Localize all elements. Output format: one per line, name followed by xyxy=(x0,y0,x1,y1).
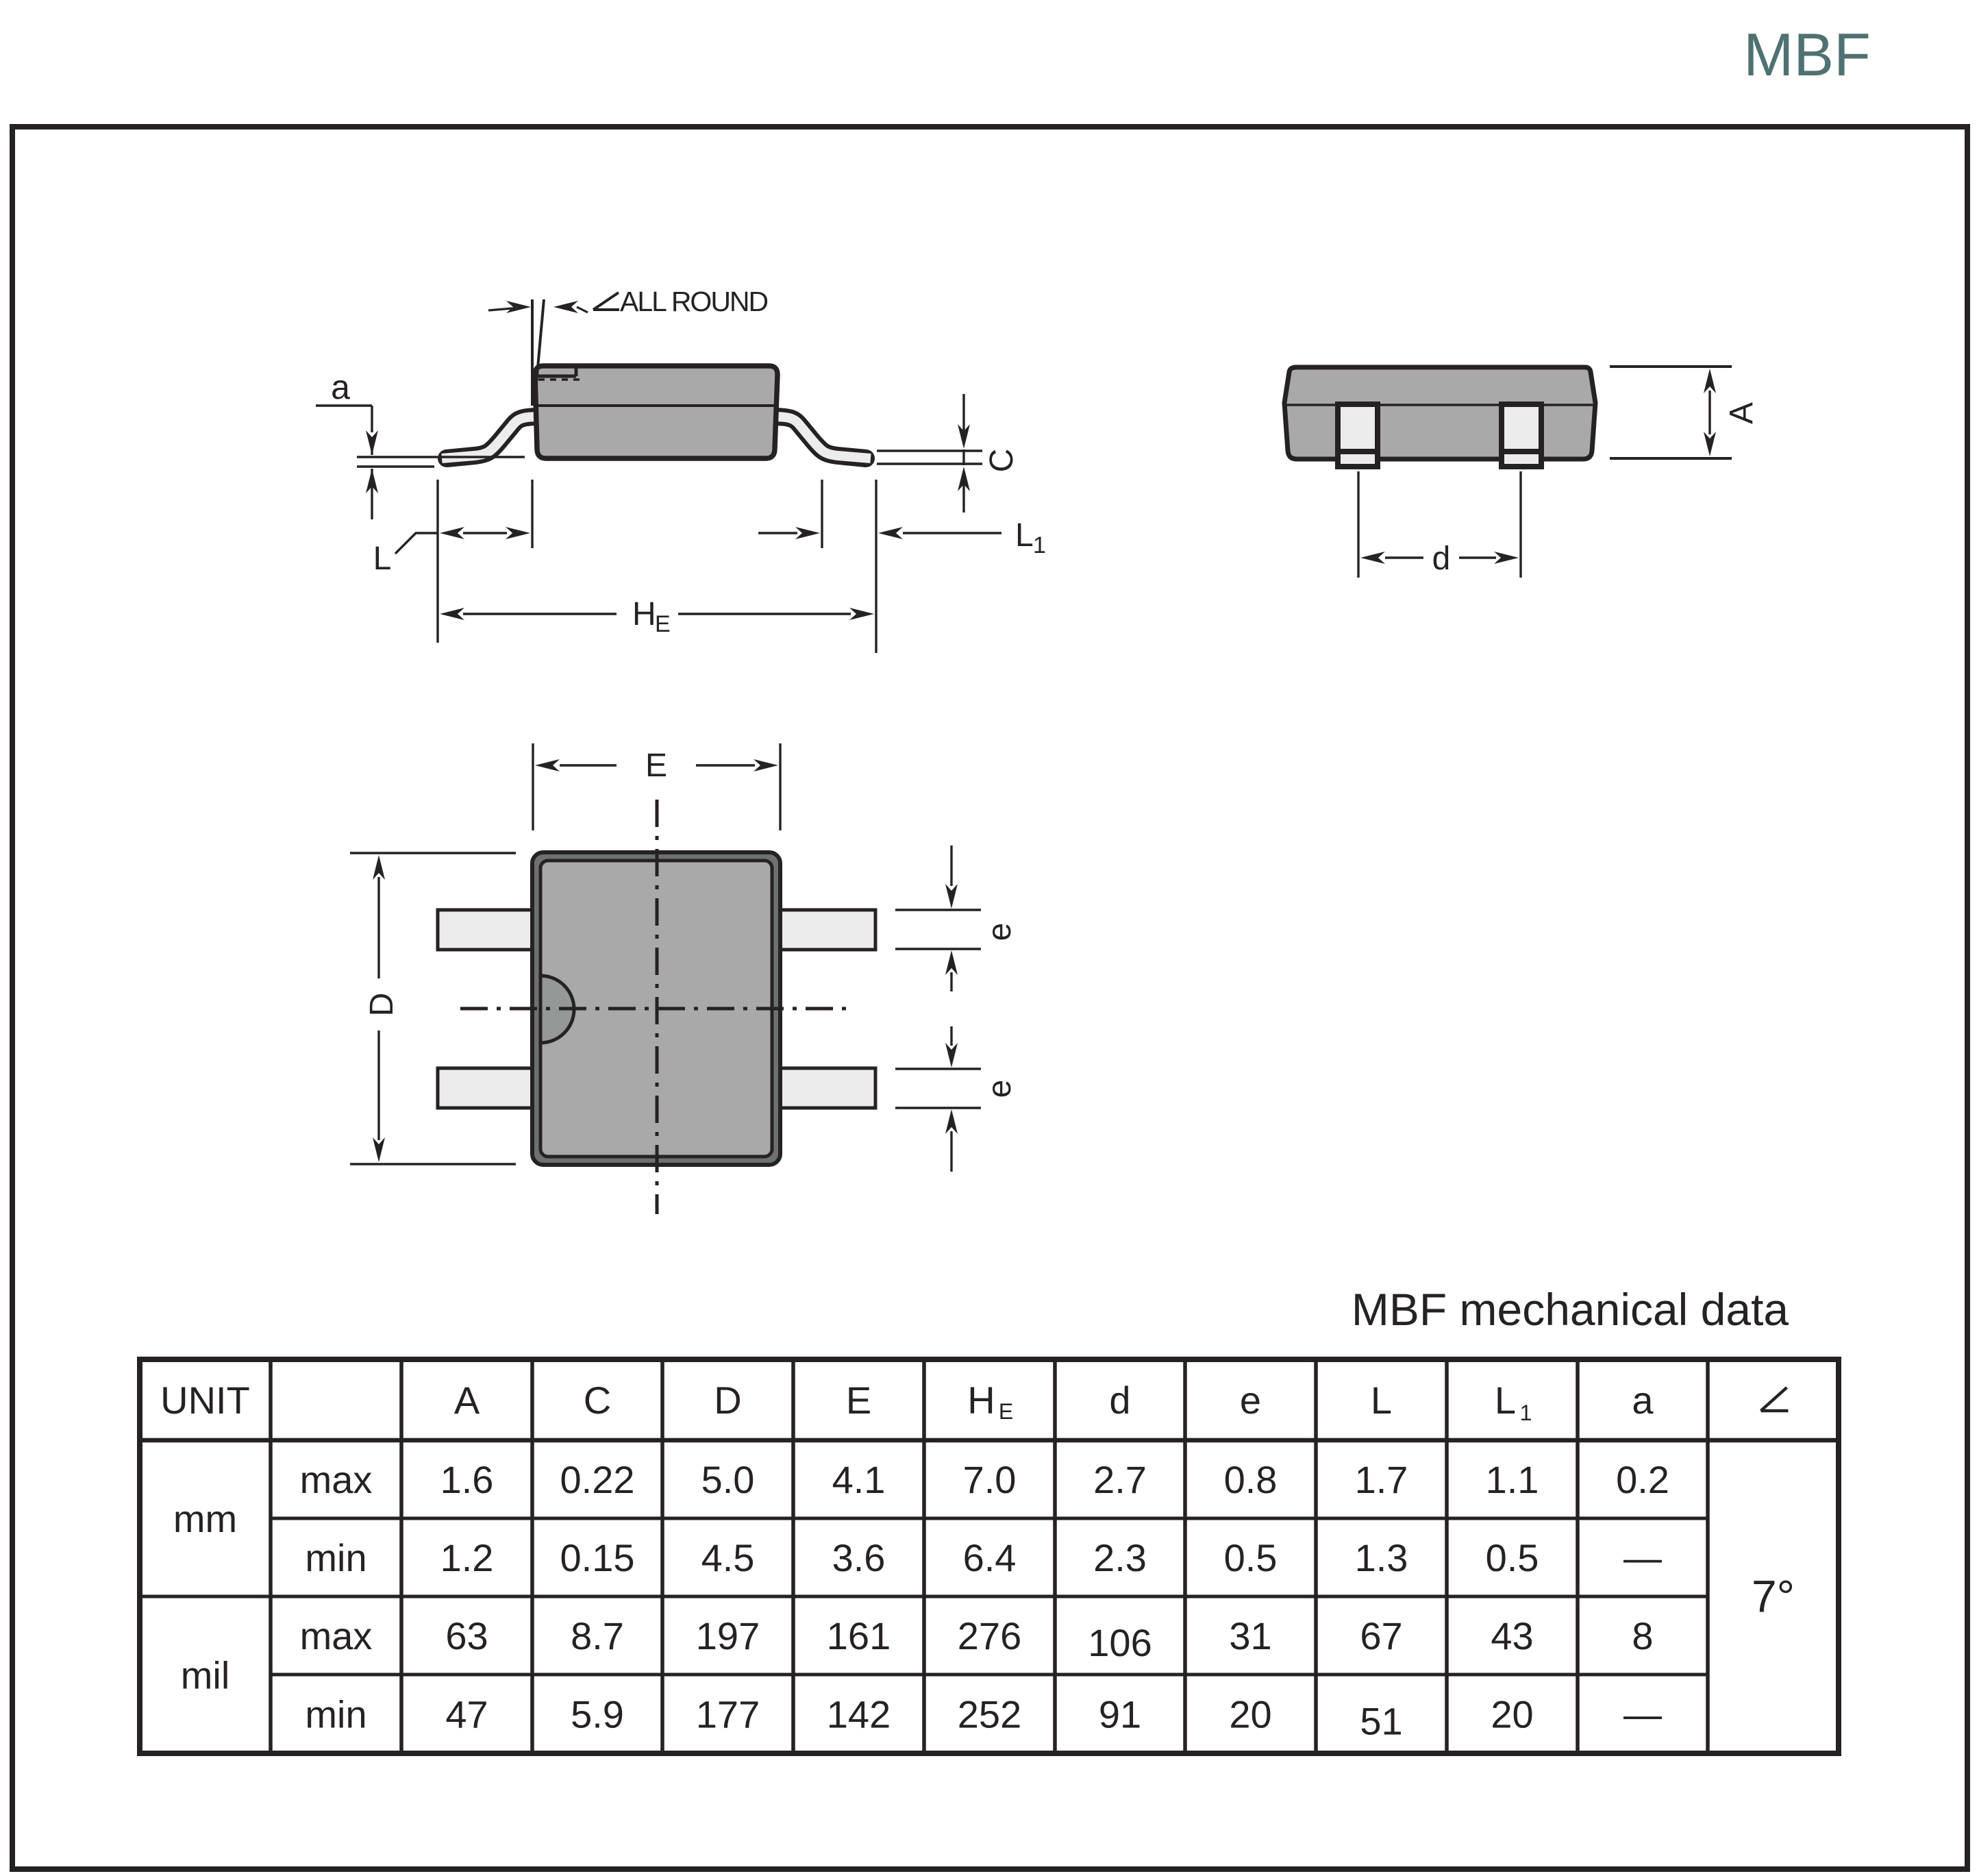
svg-text:252: 252 xyxy=(958,1693,1021,1736)
svg-text:1.7: 1.7 xyxy=(1355,1458,1408,1501)
svg-text:197: 197 xyxy=(696,1614,760,1657)
svg-text:177: 177 xyxy=(696,1693,760,1736)
svg-text:e: e xyxy=(1240,1379,1261,1422)
svg-text:A: A xyxy=(454,1379,480,1422)
svg-text:43: 43 xyxy=(1491,1614,1533,1657)
svg-text:E: E xyxy=(645,748,667,784)
svg-text:106: 106 xyxy=(1088,1621,1152,1664)
svg-text:31: 31 xyxy=(1229,1614,1271,1657)
svg-text:20: 20 xyxy=(1491,1693,1533,1736)
svg-text:max: max xyxy=(300,1614,373,1657)
svg-text:1: 1 xyxy=(1033,532,1046,558)
svg-text:a: a xyxy=(1632,1379,1654,1422)
svg-text:D: D xyxy=(714,1379,741,1422)
svg-text:E: E xyxy=(846,1379,871,1422)
svg-text:min: min xyxy=(305,1536,366,1579)
svg-text:MBF mechanical data: MBF mechanical data xyxy=(1352,1284,1789,1335)
svg-text:3.6: 3.6 xyxy=(832,1536,886,1579)
svg-text:63: 63 xyxy=(445,1614,488,1657)
svg-text:1.2: 1.2 xyxy=(440,1536,494,1579)
svg-text:5.9: 5.9 xyxy=(571,1693,624,1736)
svg-text:A: A xyxy=(1723,402,1760,424)
svg-text:—: — xyxy=(1623,1536,1662,1579)
svg-text:—: — xyxy=(1623,1693,1662,1736)
svg-text:d: d xyxy=(1432,541,1451,577)
svg-text:H: H xyxy=(632,596,656,632)
svg-text:C: C xyxy=(984,449,1020,473)
svg-text:2.7: 2.7 xyxy=(1093,1458,1147,1501)
svg-text:H: H xyxy=(967,1379,995,1422)
svg-text:C: C xyxy=(584,1379,611,1422)
svg-text:e: e xyxy=(982,1080,1018,1098)
svg-text:L: L xyxy=(1371,1379,1392,1422)
svg-text:0.5: 0.5 xyxy=(1486,1536,1539,1579)
svg-text:L: L xyxy=(1495,1379,1516,1422)
svg-text:47: 47 xyxy=(445,1693,488,1736)
svg-text:MBF: MBF xyxy=(1743,21,1871,88)
svg-text:mm: mm xyxy=(173,1497,237,1540)
svg-text:D: D xyxy=(364,993,400,1017)
svg-text:4.1: 4.1 xyxy=(832,1458,886,1501)
svg-text:7°: 7° xyxy=(1752,1571,1795,1622)
svg-text:67: 67 xyxy=(1360,1614,1402,1657)
svg-text:6.4: 6.4 xyxy=(963,1536,1017,1579)
svg-text:4.5: 4.5 xyxy=(701,1536,755,1579)
svg-text:0.15: 0.15 xyxy=(560,1536,635,1579)
svg-text:d: d xyxy=(1109,1379,1130,1422)
svg-text:0.8: 0.8 xyxy=(1224,1458,1278,1501)
svg-text:8: 8 xyxy=(1632,1614,1653,1657)
svg-text:276: 276 xyxy=(958,1614,1021,1657)
svg-text:8.7: 8.7 xyxy=(571,1614,624,1657)
svg-text:91: 91 xyxy=(1099,1693,1141,1736)
svg-text:142: 142 xyxy=(827,1693,891,1736)
svg-text:1.1: 1.1 xyxy=(1486,1458,1539,1501)
svg-text:a: a xyxy=(331,368,350,406)
svg-text:1: 1 xyxy=(1520,1400,1532,1425)
svg-text:E: E xyxy=(655,611,671,637)
svg-text:20: 20 xyxy=(1229,1693,1271,1736)
svg-text:min: min xyxy=(305,1693,366,1736)
svg-text:ALL ROUND: ALL ROUND xyxy=(620,286,768,317)
svg-text:2.3: 2.3 xyxy=(1093,1536,1147,1579)
svg-text:161: 161 xyxy=(827,1614,891,1657)
svg-text:e: e xyxy=(982,923,1018,941)
svg-text:0.2: 0.2 xyxy=(1616,1458,1669,1501)
svg-text:1.6: 1.6 xyxy=(440,1458,494,1501)
svg-text:0.22: 0.22 xyxy=(560,1458,635,1501)
svg-text:UNIT: UNIT xyxy=(160,1379,250,1422)
svg-text:mil: mil xyxy=(181,1654,230,1697)
svg-text:E: E xyxy=(999,1399,1013,1424)
svg-text:L: L xyxy=(1015,517,1034,554)
svg-text:0.5: 0.5 xyxy=(1224,1536,1278,1579)
svg-text:max: max xyxy=(300,1458,373,1501)
svg-text:L: L xyxy=(373,541,392,577)
svg-text:7.0: 7.0 xyxy=(963,1458,1017,1501)
svg-text:1.3: 1.3 xyxy=(1355,1536,1408,1579)
svg-text:5.0: 5.0 xyxy=(701,1458,755,1501)
svg-text:51: 51 xyxy=(1360,1700,1402,1743)
